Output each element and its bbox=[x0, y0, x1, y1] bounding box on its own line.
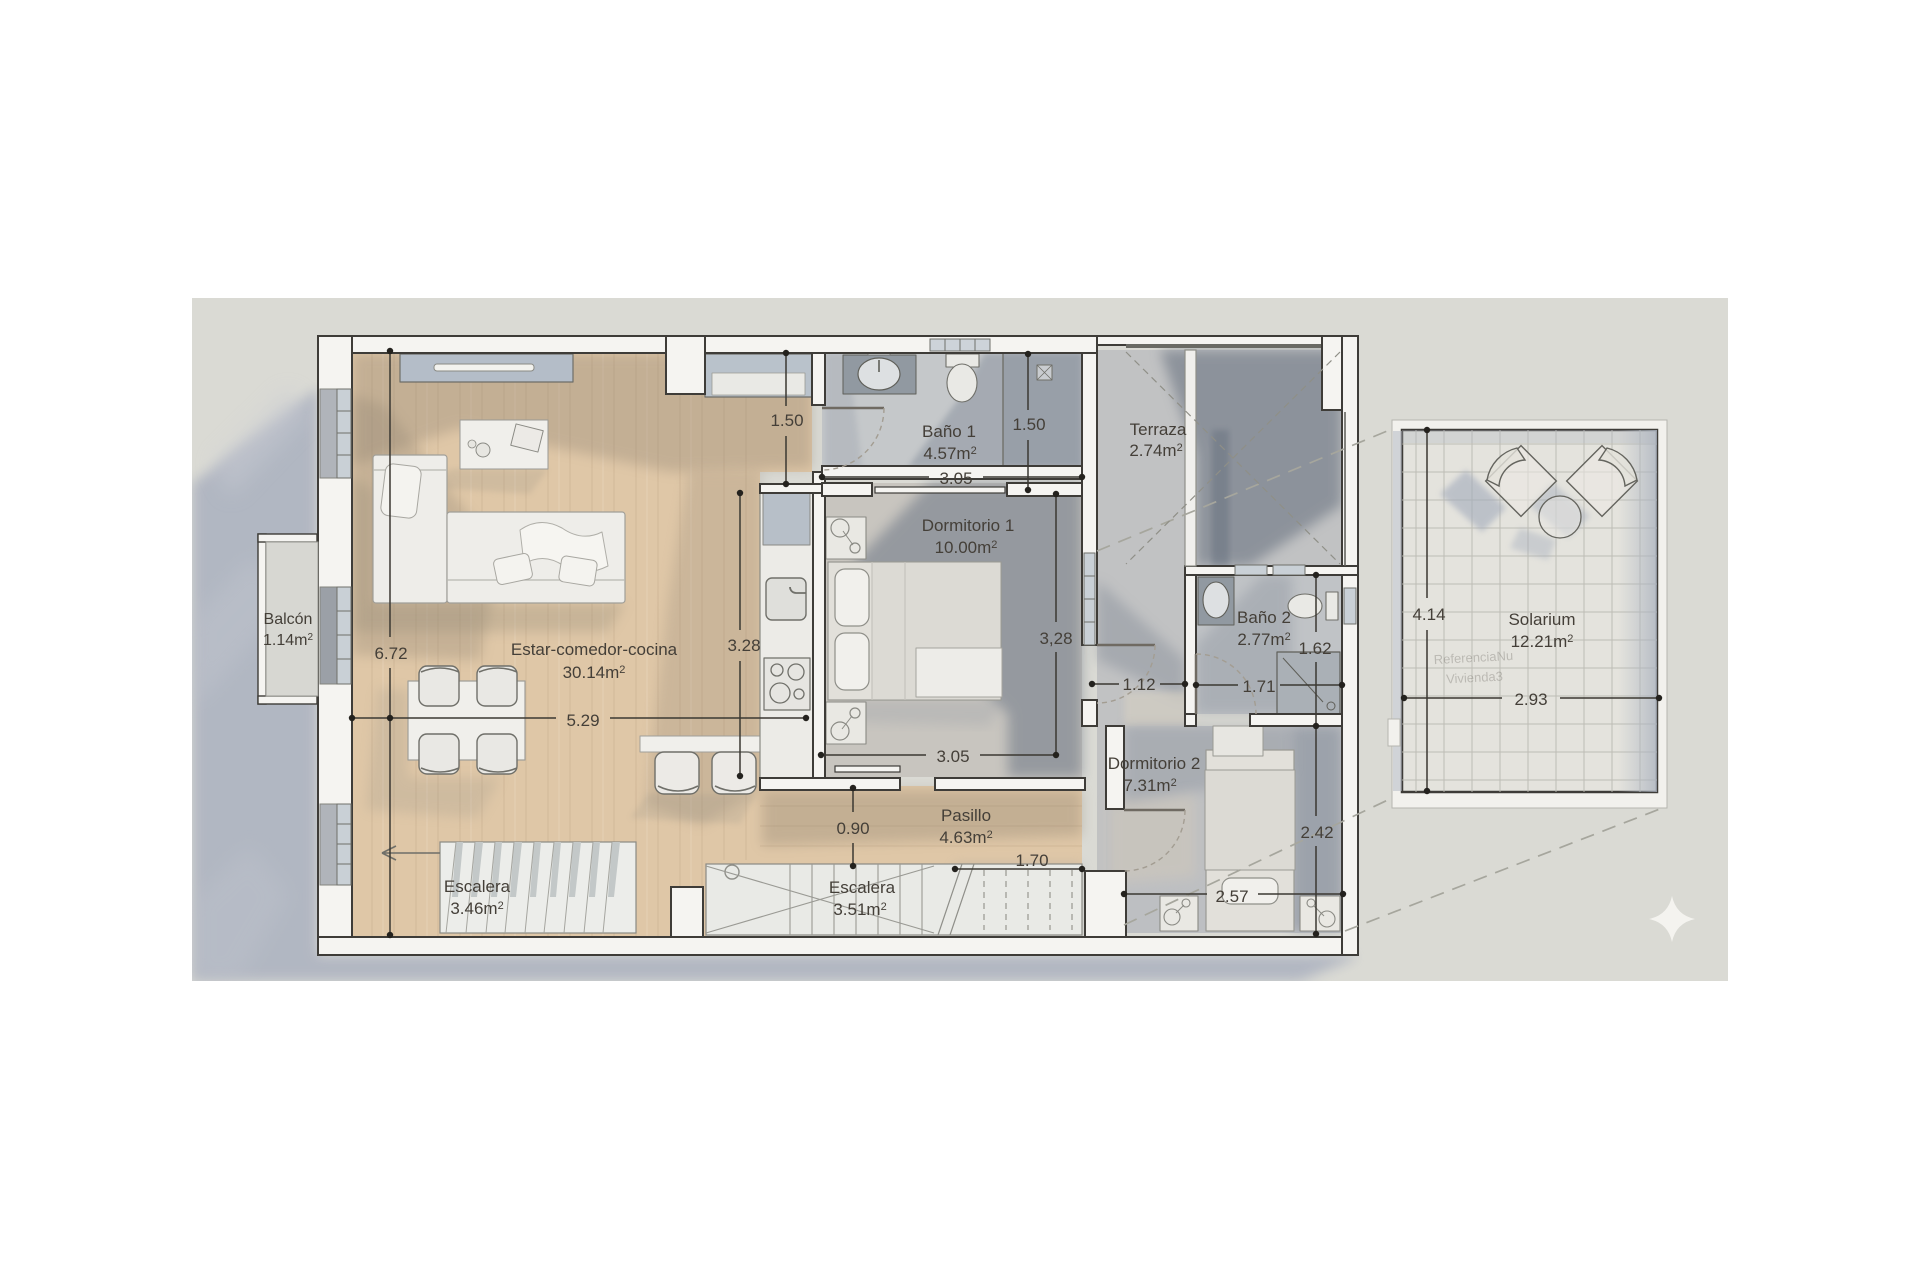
svg-text:Vivienda3: Vivienda3 bbox=[1446, 669, 1504, 687]
svg-text:10.00m2: 10.00m2 bbox=[935, 538, 998, 557]
svg-text:0.90: 0.90 bbox=[836, 819, 869, 838]
svg-text:2.93: 2.93 bbox=[1514, 690, 1547, 709]
svg-text:1.62: 1.62 bbox=[1298, 639, 1331, 658]
svg-text:2.42: 2.42 bbox=[1300, 823, 1333, 842]
svg-text:3.05: 3.05 bbox=[939, 469, 972, 488]
svg-text:4.14: 4.14 bbox=[1412, 605, 1445, 624]
svg-text:1.50: 1.50 bbox=[1012, 415, 1045, 434]
svg-text:Terraza: Terraza bbox=[1130, 420, 1187, 439]
svg-text:2.74m2: 2.74m2 bbox=[1129, 441, 1182, 460]
svg-text:5.29: 5.29 bbox=[566, 711, 599, 730]
svg-text:Dormitorio 1: Dormitorio 1 bbox=[922, 516, 1015, 535]
svg-text:Baño 1: Baño 1 bbox=[922, 422, 976, 441]
svg-text:7.31m2: 7.31m2 bbox=[1123, 776, 1176, 795]
svg-text:1.12: 1.12 bbox=[1122, 675, 1155, 694]
svg-text:1.70: 1.70 bbox=[1015, 851, 1048, 870]
svg-text:4.63m2: 4.63m2 bbox=[939, 828, 992, 847]
svg-text:2.77m2: 2.77m2 bbox=[1237, 630, 1290, 649]
svg-text:1.71: 1.71 bbox=[1242, 677, 1275, 696]
svg-text:Escalera: Escalera bbox=[444, 877, 511, 896]
svg-text:Escalera: Escalera bbox=[829, 878, 896, 897]
svg-text:Baño 2: Baño 2 bbox=[1237, 608, 1291, 627]
svg-text:1.50: 1.50 bbox=[770, 411, 803, 430]
svg-text:Balcón: Balcón bbox=[264, 611, 313, 628]
svg-text:3.51m2: 3.51m2 bbox=[833, 900, 886, 919]
svg-text:Estar-comedor-cocina: Estar-comedor-cocina bbox=[511, 640, 678, 659]
svg-text:Pasillo: Pasillo bbox=[941, 806, 991, 825]
svg-text:3,28: 3,28 bbox=[1039, 629, 1072, 648]
svg-text:2.57: 2.57 bbox=[1215, 887, 1248, 906]
svg-text:4.57m2: 4.57m2 bbox=[923, 444, 976, 463]
svg-text:Solarium: Solarium bbox=[1508, 610, 1575, 629]
svg-text:3.05: 3.05 bbox=[936, 747, 969, 766]
svg-text:Dormitorio 2: Dormitorio 2 bbox=[1108, 754, 1201, 773]
svg-text:1.14m2: 1.14m2 bbox=[263, 632, 313, 649]
svg-text:30.14m2: 30.14m2 bbox=[563, 663, 626, 682]
svg-text:3.46m2: 3.46m2 bbox=[450, 899, 503, 918]
svg-text:3.28: 3.28 bbox=[727, 636, 760, 655]
svg-text:12.21m2: 12.21m2 bbox=[1511, 632, 1574, 651]
svg-text:6.72: 6.72 bbox=[374, 644, 407, 663]
